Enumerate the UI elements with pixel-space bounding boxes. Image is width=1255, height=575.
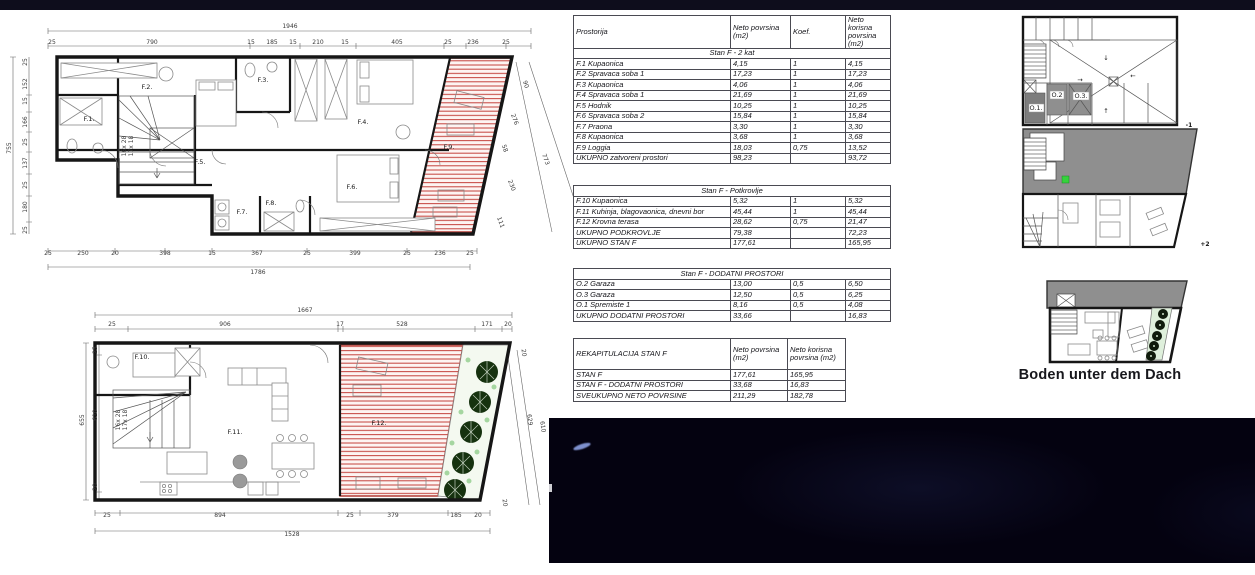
table-cell: 1 [791, 80, 846, 91]
dimension-text: 1946 [282, 23, 297, 30]
dimension-text: 185 [266, 39, 278, 46]
dimension-text: 25 [44, 250, 52, 257]
room-label: F.9. [444, 143, 455, 151]
table-row: F.3 Kupaonica4,0614,06 [574, 80, 891, 91]
keyplan-level-minus1: O.1.O.2O.3. ↓→←↑ [1023, 17, 1177, 125]
table-row: F.9 Loggia18,030,7513,52 [574, 143, 891, 154]
room-label: F.6. [347, 183, 358, 191]
dimension-text: 405 [391, 39, 403, 46]
green-marker [1062, 176, 1069, 183]
floorplan-attic: F.10.F.11.F.12. 166725906175281712065525… [79, 307, 547, 538]
stair-note: 16x 28 [115, 409, 122, 430]
table-cell: 17,23 [846, 69, 891, 80]
section-title: Stan F - 2 kat [574, 48, 891, 59]
stair-note: 16x 28 [121, 135, 128, 156]
dimension-text: 894 [214, 512, 226, 519]
dimension-text: 1667 [297, 307, 312, 314]
area-table-attic: Stan F - Potkrovlje F.10 Kupaonica5,3215… [573, 185, 891, 249]
section-rows: O.2 Garaza13,000,56,50O.3 Garaza12,500,5… [574, 279, 891, 321]
dimension-text: 25 [346, 512, 354, 519]
table-row: F.2 Spravaca soba 117,23117,23 [574, 69, 891, 80]
dimension-text: 20 [111, 250, 119, 257]
dimension-text: 166 [22, 116, 29, 128]
dimension-text: 185 [450, 512, 462, 519]
dimension-text: 111 [495, 216, 506, 229]
table-row: O.3 Garaza12,500,56,25 [574, 290, 891, 301]
dimension-text: 25 [466, 250, 474, 257]
table-cell: 1 [791, 196, 846, 207]
dimension-text: 790 [146, 39, 158, 46]
table-cell: 211,29 [731, 391, 788, 402]
table-header-row: Prostorija Neto povrsina (m2) Koef. Neto… [574, 16, 891, 49]
table-cell: F.12 Krovna terasa [574, 217, 731, 228]
table-cell: 15,84 [731, 111, 791, 122]
table-cell: 13,00 [731, 279, 791, 290]
rekap-label: REKAPITULACIJA STAN F [574, 339, 731, 370]
dimension-text: 25 [22, 58, 29, 66]
dimension-text: 58 [500, 144, 509, 154]
table-cell: F.10 Kupaonica [574, 196, 731, 207]
dimension-text: 1528 [284, 531, 299, 538]
col-header-neto-povrsina: Neto povrsina (m2) [731, 339, 788, 370]
table-cell: 4,06 [846, 80, 891, 91]
dimension-text: 25 [403, 250, 411, 257]
table-row: F.6 Spravaca soba 215,84115,84 [574, 111, 891, 122]
table-cell: 0,5 [791, 300, 846, 311]
table-row: F.1 Kupaonica4,1514,15 [574, 59, 891, 70]
section-title-row: Stan F - 2 kat [574, 48, 891, 59]
dimension-text: 755 [6, 142, 13, 154]
table-cell: 4,08 [846, 300, 891, 311]
room-label: O.2 [1051, 91, 1062, 99]
room-label: O.1. [1029, 104, 1042, 112]
direction-arrow: ↑ [1103, 107, 1108, 115]
table-cell: F.6 Spravaca soba 2 [574, 111, 731, 122]
section-title-row: Stan F - DODATNI PROSTORI [574, 269, 891, 280]
table-row: O.1 Spremiste 18,160,54,08 [574, 300, 891, 311]
table-cell: 45,44 [846, 207, 891, 218]
dimension-text: 379 [387, 512, 399, 519]
table-cell: 177,61 [731, 370, 788, 381]
dimension-text: 17 [336, 321, 344, 328]
direction-arrow: → [1077, 76, 1083, 84]
direction-arrow: ← [1130, 72, 1136, 80]
area-table-rekap: REKAPITULACIJA STAN F Neto povrsina (m2)… [573, 338, 846, 402]
table-cell: 45,44 [731, 207, 791, 218]
dimension-text: 25 [22, 226, 29, 234]
level-label: +2 [1200, 241, 1209, 248]
table-cell: 10,25 [846, 101, 891, 112]
table-row: F.10 Kupaonica5,3215,32 [574, 196, 891, 207]
table-cell: F.1 Kupaonica [574, 59, 731, 70]
dimension-text: 25 [502, 39, 510, 46]
table-row: STAN F177,61165,95 [574, 370, 846, 381]
staircase [1051, 310, 1077, 334]
stair-note: 17x 18 [122, 409, 129, 430]
attic-caption: Boden unter dem Dach [1015, 367, 1185, 383]
room-label: F.10. [134, 353, 149, 361]
table-cell: 17,23 [731, 69, 791, 80]
table-cell: F.8 Kupaonica [574, 132, 731, 143]
table-row: SVEUKUPNO NETO POVRSINE211,29182,78 [574, 391, 846, 402]
table-cell: 1 [791, 132, 846, 143]
dimension-text: 25 [108, 321, 116, 328]
table-cell [791, 238, 846, 249]
table-cell: 10,25 [731, 101, 791, 112]
night-photo [549, 418, 1255, 563]
table-row: UKUPNO STAN F177,61165,95 [574, 238, 891, 249]
table-cell: 0,5 [791, 279, 846, 290]
table-cell: F.2 Spravaca soba 1 [574, 69, 731, 80]
level-label: -1 [1186, 122, 1193, 129]
area-table-additional: Stan F - DODATNI PROSTORI O.2 Garaza13,0… [573, 268, 891, 322]
table-cell: 4,06 [731, 80, 791, 91]
table-cell: F.5 Hodnik [574, 101, 731, 112]
section-title: Stan F - Potkrovlje [574, 186, 891, 197]
room-label: O.3. [1074, 92, 1087, 100]
table-cell: 93,72 [846, 153, 891, 164]
photo-light-glint [573, 441, 592, 451]
table-cell: 33,66 [731, 311, 791, 322]
table-cell: F.7 Praona [574, 122, 731, 133]
dimension-text: 25 [303, 250, 311, 257]
table-cell: 0,75 [791, 143, 846, 154]
table-cell: F.9 Loggia [574, 143, 731, 154]
table-cell: 4,15 [731, 59, 791, 70]
table-cell: 12,50 [731, 290, 791, 301]
room-label: F.11. [227, 428, 242, 436]
floorplan-level2: F.1.F.2.F.3.F.4.F.5.F.6.F.7.F.8.F.9. 194… [6, 23, 585, 276]
table-cell: F.11 Kuhinja, blagovaonica, dnevni bor [574, 207, 731, 218]
table-cell: F.3 Kupaonica [574, 80, 731, 91]
table-cell: 5,32 [846, 196, 891, 207]
table-row: F.7 Praona3,3013,30 [574, 122, 891, 133]
dimension-text: 906 [219, 321, 231, 328]
table-row: UKUPNO zatvoreni prostori98,2393,72 [574, 153, 891, 164]
dimension-text: 610 [92, 409, 99, 421]
table-cell: STAN F [574, 370, 731, 381]
dimension-text: 15 [208, 250, 216, 257]
table-cell: UKUPNO DODATNI PROSTORI [574, 311, 731, 322]
dimension-text: 528 [396, 321, 408, 328]
table-cell: 6,50 [846, 279, 891, 290]
table-cell: 15,84 [846, 111, 891, 122]
section-title-row: Stan F - Potkrovlje [574, 186, 891, 197]
col-header-prostorija: Prostorija [574, 16, 731, 49]
dimension-text: 15 [341, 39, 349, 46]
table-cell: 98,23 [731, 153, 791, 164]
table-cell: UKUPNO zatvoreni prostori [574, 153, 731, 164]
table-cell: 4,15 [846, 59, 891, 70]
table-cell: 8,16 [731, 300, 791, 311]
table-cell: 21,69 [731, 90, 791, 101]
table-cell: 0,5 [791, 290, 846, 301]
room-label: F.2. [142, 83, 153, 91]
keyplan-level-plus2: -1+2 [1023, 122, 1210, 248]
table-cell: 3,68 [846, 132, 891, 143]
dimension-text: 230 [506, 179, 517, 192]
room-label: F.4. [358, 118, 369, 126]
table-row: UKUPNO PODKROVLJE79,3872,23 [574, 228, 891, 239]
keyplan-attic [1047, 281, 1187, 362]
table-cell: 3,30 [731, 122, 791, 133]
table-cell: 21,69 [846, 90, 891, 101]
dimension-text: 236 [467, 39, 479, 46]
direction-arrow: ↓ [1103, 54, 1108, 62]
table-cell: 18,03 [731, 143, 791, 154]
table-cell: O.1 Spremiste 1 [574, 300, 731, 311]
table-row: F.5 Hodnik10,25110,25 [574, 101, 891, 112]
dimension-text: 399 [349, 250, 361, 257]
room-label: F.12. [371, 419, 386, 427]
room-label: F.3. [258, 76, 269, 84]
dimension-text: 152 [22, 78, 29, 90]
table-cell [791, 311, 846, 322]
table-row: F.11 Kuhinja, blagovaonica, dnevni bor45… [574, 207, 891, 218]
room-label: F.5. [195, 158, 206, 166]
dimension-text: 25 [92, 346, 99, 354]
section-title: Stan F - DODATNI PROSTORI [574, 269, 891, 280]
table-cell: 5,32 [731, 196, 791, 207]
dimension-text: 25 [22, 181, 29, 189]
table-row: UKUPNO DODATNI PROSTORI33,6616,83 [574, 311, 891, 322]
section-rows: F.10 Kupaonica5,3215,32F.11 Kuhinja, bla… [574, 196, 891, 249]
table-cell: 1 [791, 207, 846, 218]
table-row: O.2 Garaza13,000,56,50 [574, 279, 891, 290]
dimension-text: 25 [48, 39, 56, 46]
staircase [1024, 138, 1046, 170]
table-cell: 21,47 [846, 217, 891, 228]
dimension-text: 655 [79, 414, 86, 426]
table-cell: 1 [791, 122, 846, 133]
table-cell: 1 [791, 69, 846, 80]
table-cell: 177,61 [731, 238, 791, 249]
table-cell: 0,75 [791, 217, 846, 228]
room-label: F.8. [266, 199, 277, 207]
table-cell: 28,62 [731, 217, 791, 228]
room-label: F.7. [237, 208, 248, 216]
garage-O2 [1047, 84, 1067, 115]
dimension-text: 250 [77, 250, 89, 257]
col-header-neto-korisna: Neto korisna povrsina (m2) [846, 16, 891, 49]
table-cell: UKUPNO STAN F [574, 238, 731, 249]
dimension-text: 15 [247, 39, 255, 46]
table-cell: 165,95 [846, 238, 891, 249]
area-table-level2: Prostorija Neto povrsina (m2) Koef. Neto… [573, 15, 891, 164]
stair-notes: 16x 2817x 18 [121, 135, 135, 156]
dimension-text: 398 [159, 250, 171, 257]
stair-note: 17x 18 [128, 135, 135, 156]
photo-edge-notch [549, 484, 552, 492]
dimension-text: 20 [92, 483, 99, 491]
staircase [1024, 44, 1046, 78]
table-row: STAN F - DODATNI PROSTORI33,6816,83 [574, 380, 846, 391]
section-rows: STAN F177,61165,95STAN F - DODATNI PROST… [574, 370, 846, 402]
dimension-text: 629 [525, 414, 534, 426]
table-row: F.8 Kupaonica3,6813,68 [574, 132, 891, 143]
loggia-terrace-hatch [411, 58, 512, 232]
dimension-text: 236 [434, 250, 446, 257]
dimension-text: 90 [521, 80, 530, 90]
table-cell: STAN F - DODATNI PROSTORI [574, 380, 731, 391]
dimension-text: 15 [289, 39, 297, 46]
stair-notes: 16x 2817x 18 [115, 409, 129, 430]
section-rows: F.1 Kupaonica4,1514,15F.2 Spravaca soba … [574, 59, 891, 164]
col-header-koef: Koef. [791, 16, 846, 49]
table-cell: 6,25 [846, 290, 891, 301]
dimension-text: 367 [251, 250, 263, 257]
table-cell: 1 [791, 101, 846, 112]
table-cell: 13,52 [846, 143, 891, 154]
dimension-text: 25 [22, 138, 29, 146]
dimension-text: 610 [538, 421, 547, 433]
table-cell: 16,83 [846, 311, 891, 322]
interior-walls [95, 345, 340, 496]
table-header-row: REKAPITULACIJA STAN F Neto povrsina (m2)… [574, 339, 846, 370]
table-cell: O.2 Garaza [574, 279, 731, 290]
dimension-text: 15 [22, 97, 29, 105]
table-cell: F.4 Spravaca soba 1 [574, 90, 731, 101]
table-cell: 79,38 [731, 228, 791, 239]
table-cell: 72,23 [846, 228, 891, 239]
table-cell: 33,68 [731, 380, 788, 391]
table-cell: SVEUKUPNO NETO POVRSINE [574, 391, 731, 402]
table-cell: 1 [791, 111, 846, 122]
table-cell: UKUPNO PODKROVLJE [574, 228, 731, 239]
table-cell [791, 153, 846, 164]
room-label: F.1. [84, 115, 95, 123]
photo-shadow-detail [1149, 458, 1255, 563]
dimension-text: 171 [481, 321, 493, 328]
table-row: F.12 Krovna terasa28,620,7521,47 [574, 217, 891, 228]
drawing-sheet: F.1.F.2.F.3.F.4.F.5.F.6.F.7.F.8.F.9. 194… [0, 0, 1255, 575]
table-row: F.4 Spravaca soba 121,69121,69 [574, 90, 891, 101]
dimension-text: 20 [519, 349, 527, 358]
table-cell: 16,83 [788, 380, 846, 391]
col-header-neto-korisna: Neto korisna povrsina (m2) [788, 339, 846, 370]
dimension-text: 180 [22, 201, 29, 213]
dimension-text: 1786 [250, 269, 265, 276]
dimension-text: 276 [509, 113, 520, 126]
dimension-text: 20 [500, 499, 508, 508]
dimension-text: 25 [444, 39, 452, 46]
dimension-text: 20 [474, 512, 482, 519]
dimension-text: 210 [312, 39, 324, 46]
table-cell: 1 [791, 59, 846, 70]
col-header-neto-povrsina: Neto povrsina (m2) [731, 16, 791, 49]
dimension-text: 137 [22, 157, 29, 169]
dimension-text: 25 [103, 512, 111, 519]
photo-shadow-detail [729, 428, 1109, 548]
table-cell: 3,30 [846, 122, 891, 133]
dimension-text: 773 [540, 153, 551, 166]
dimension-text: 20 [504, 321, 512, 328]
table-cell: 182,78 [788, 391, 846, 402]
table-cell: 3,68 [731, 132, 791, 143]
table-cell: 165,95 [788, 370, 846, 381]
unit-outline [1023, 194, 1186, 247]
table-cell [791, 228, 846, 239]
table-cell: O.3 Garaza [574, 290, 731, 301]
table-cell: 1 [791, 90, 846, 101]
